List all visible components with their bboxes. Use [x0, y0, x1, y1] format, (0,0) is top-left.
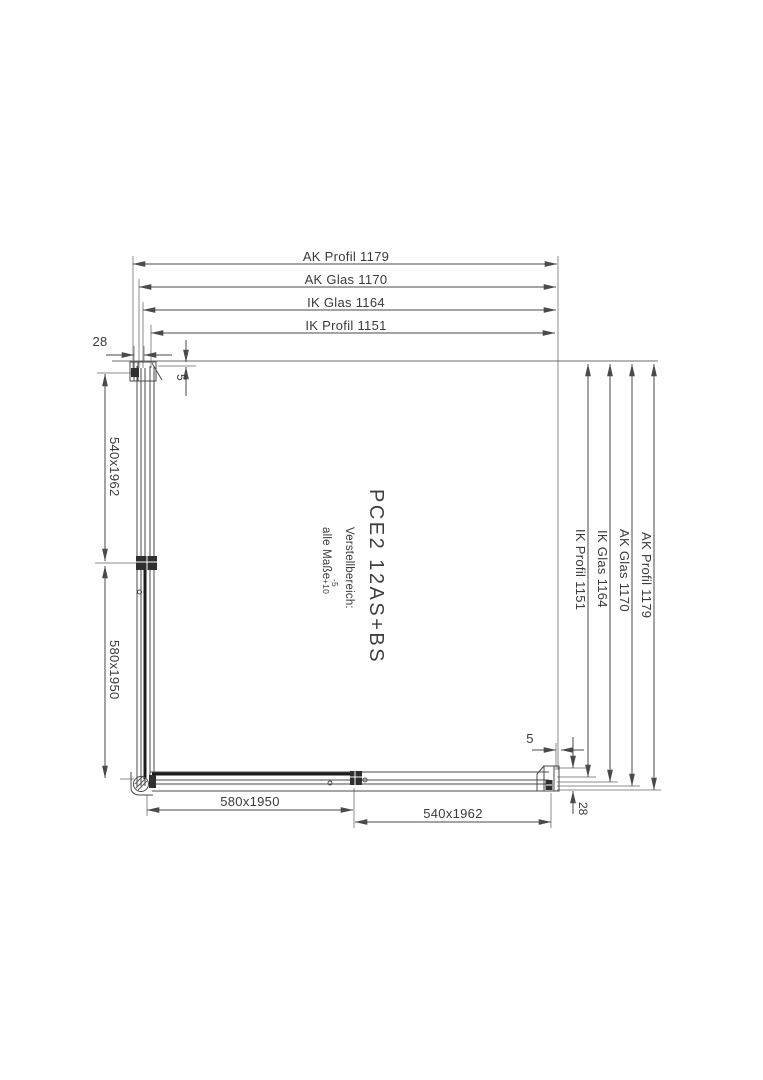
tolerance-stack: -5+10	[321, 579, 339, 594]
tolerance-note: Verstellbereich: alle Maße-5+10	[319, 527, 356, 609]
tolerance-minus: -5	[330, 579, 340, 587]
technical-drawing-canvas: AK Profil 1179 AK Glas 1170 IK Glas 1164…	[0, 0, 763, 1080]
dim-label-top-ik-profil: IK Profil 1151	[246, 318, 446, 333]
dim-label-bottom-580x1950: 580x1950	[150, 794, 350, 809]
dim-label-top-ak-profil: AK Profil 1179	[246, 249, 446, 264]
dim-label-left-540x1962: 540x1962	[107, 437, 122, 497]
tolerance-note-line2: alle Maße	[320, 527, 332, 579]
dim-label-bottom-540x1962: 540x1962	[353, 806, 553, 821]
end-profile-chamfer	[537, 766, 544, 791]
wall-profile-top-detail	[130, 362, 162, 381]
dim-label-28-bottom: 28	[576, 802, 590, 815]
wall-profile-insert	[131, 368, 139, 377]
dim-label-right-ak-glas: AK Glas 1170	[617, 529, 632, 612]
corner-clamp	[149, 775, 156, 788]
dim-label-5-bottom: 5	[520, 731, 540, 746]
dim-label-top-ak-glas: AK Glas 1170	[246, 272, 446, 287]
dim-label-left-580x1950: 580x1950	[107, 640, 122, 700]
dim-label-right-ik-glas: IK Glas 1164	[595, 530, 610, 608]
product-code: PCE2 12AS+BS	[364, 489, 387, 664]
dim-label-top-ik-glas: IK Glas 1164	[246, 295, 446, 310]
tolerance-plus: +10	[321, 579, 331, 594]
dim-label-right-ik-profil: IK Profil 1151	[573, 529, 588, 610]
dim-label-right-ak-profil: AK Profil 1179	[639, 532, 654, 618]
hatch-line	[138, 781, 147, 790]
connector-body	[350, 771, 362, 785]
dim-label-28-top: 28	[86, 334, 114, 349]
dim-label-5-top: 5	[174, 374, 188, 381]
tolerance-note-line1: Verstellbereich:	[343, 527, 355, 609]
